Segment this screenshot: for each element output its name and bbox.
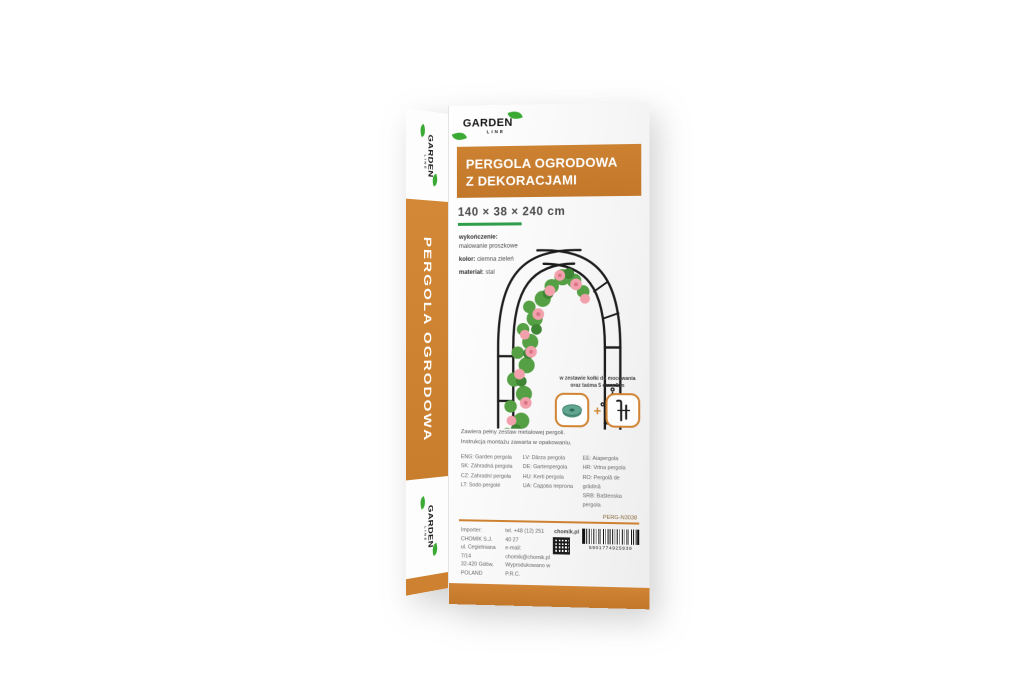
website-label: chomik.pl xyxy=(554,528,579,537)
brand-name: GARDEN xyxy=(427,505,434,549)
spec-label: materiał: xyxy=(459,270,484,276)
importer-line: Importer: CHOMIK S.J. xyxy=(461,526,502,544)
brand-logo-rotated-bottom: GARDEN LINE xyxy=(421,505,433,550)
leaf-icon xyxy=(431,174,439,187)
spec-label: kolor: xyxy=(459,257,476,263)
spec-value: stal xyxy=(485,270,494,276)
importer-line: 32-420 Gdów, POLAND xyxy=(461,560,502,578)
translation-column-3: EE: Aiapergola HR: Vrtna pergola RO: Per… xyxy=(583,455,638,512)
product-photo-canvas: GARDEN LINE PERGOLA OGRODOWA GARDEN LINE xyxy=(0,0,1024,683)
front-bottom-orange-strip xyxy=(449,583,649,609)
ground-anchor-icon xyxy=(605,393,640,428)
brand-logo-rotated-top: GARDEN LINE xyxy=(421,133,433,178)
tape-roll-icon xyxy=(555,393,589,428)
brand-subname: LINE xyxy=(423,526,426,549)
side-logo-top-area: GARDEN LINE xyxy=(406,108,448,202)
translation-column-1: ENG: Garden pergola SK: Záhradná pergola… xyxy=(461,453,520,510)
included-in-set: w zestawie kołki do mocowania oraz taśma… xyxy=(551,375,645,428)
qr-code xyxy=(554,538,569,553)
product-illustration-area: wykończenie: malowanie proszkowe kolor: … xyxy=(449,225,649,431)
spec-value: malowanie proszkowe xyxy=(459,244,518,250)
importer-address: Importer: CHOMIK S.J. ul. Cegielniana 7/… xyxy=(461,526,502,578)
barcode-number: 5901774925939 xyxy=(582,544,639,553)
spec-value: ciemna zieleń xyxy=(477,257,514,263)
brand-subname: LINE xyxy=(487,130,513,135)
translation-item: RO: Pergolă de grădină xyxy=(583,474,638,494)
translation-item: SK: Záhradná pergola xyxy=(461,463,520,473)
side-vertical-title: PERGOLA OGRODOWA xyxy=(421,236,433,442)
plus-sign: + xyxy=(594,403,602,418)
product-title-line2: Z DEKORACJAMI xyxy=(466,171,632,190)
translation-item: DE: Gartenpergola xyxy=(523,463,580,473)
spec-label: wykończenie: xyxy=(459,235,498,241)
included-note-line2: oraz taśma 5 cm × 5 m xyxy=(551,383,645,391)
translation-item: UA: Садова пергола xyxy=(523,482,580,492)
package-notes: Zawiera pełny zestaw metalowej pergoli. … xyxy=(449,428,649,450)
brand-name: GARDEN xyxy=(463,118,513,130)
product-title-line1: PERGOLA OGRODOWA xyxy=(466,153,632,173)
barcode-block: 5901774925939 xyxy=(582,529,639,554)
translation-item: LT: Sodo pergolė xyxy=(461,481,520,491)
translation-item: SRB: Baštenska pergola xyxy=(583,492,638,512)
brand-subname: LINE xyxy=(423,154,426,177)
importer-block: Importer: CHOMIK S.J. ul. Cegielniana 7/… xyxy=(449,521,649,584)
spec-list: wykończenie: malowanie proszkowe kolor: … xyxy=(459,234,518,283)
qr-block: chomik.pl xyxy=(554,528,579,553)
spec-color: kolor: ciemna zieleń xyxy=(459,256,518,265)
translation-item: HR: Vrtna pergola xyxy=(583,464,638,474)
leaf-icon xyxy=(452,129,467,142)
product-dimensions: 140 × 38 × 240 cm xyxy=(458,205,640,219)
importer-contact: tel. +48 (12) 251 40 27 e-mail: chomik@c… xyxy=(505,527,551,579)
box-side-panel: GARDEN LINE PERGOLA OGRODOWA GARDEN LINE xyxy=(406,108,448,596)
side-title-area: PERGOLA OGRODOWA xyxy=(406,199,448,481)
translation-column-2: LV: Dārza pergola DE: Gartenpergola HU: … xyxy=(523,454,580,511)
translation-list: ENG: Garden pergola SK: Záhradná pergola… xyxy=(449,448,649,512)
contact-line: e-mail: chomik@chomik.pl xyxy=(505,544,551,562)
contact-line: Wyprodukowano w P.R.C. xyxy=(505,561,551,579)
box-front-panel: GARDEN LINE PERGOLA OGRODOWA Z DEKORACJA… xyxy=(448,102,649,609)
front-logo-area: GARDEN LINE xyxy=(449,102,649,144)
brand-name: GARDEN xyxy=(427,134,434,178)
importer-line: ul. Cegielniana 7/14 xyxy=(461,543,502,561)
spec-material: materiał: stal xyxy=(459,269,518,278)
contact-line: tel. +48 (12) 251 40 27 xyxy=(505,527,551,545)
product-title-banner: PERGOLA OGRODOWA Z DEKORACJAMI xyxy=(457,144,641,198)
product-box: GARDEN LINE PERGOLA OGRODOWA GARDEN LINE xyxy=(390,106,660,616)
side-logo-bottom-area: GARDEN LINE xyxy=(406,476,448,579)
barcode xyxy=(582,529,639,545)
spec-finish: wykończenie: malowanie proszkowe xyxy=(459,234,518,252)
